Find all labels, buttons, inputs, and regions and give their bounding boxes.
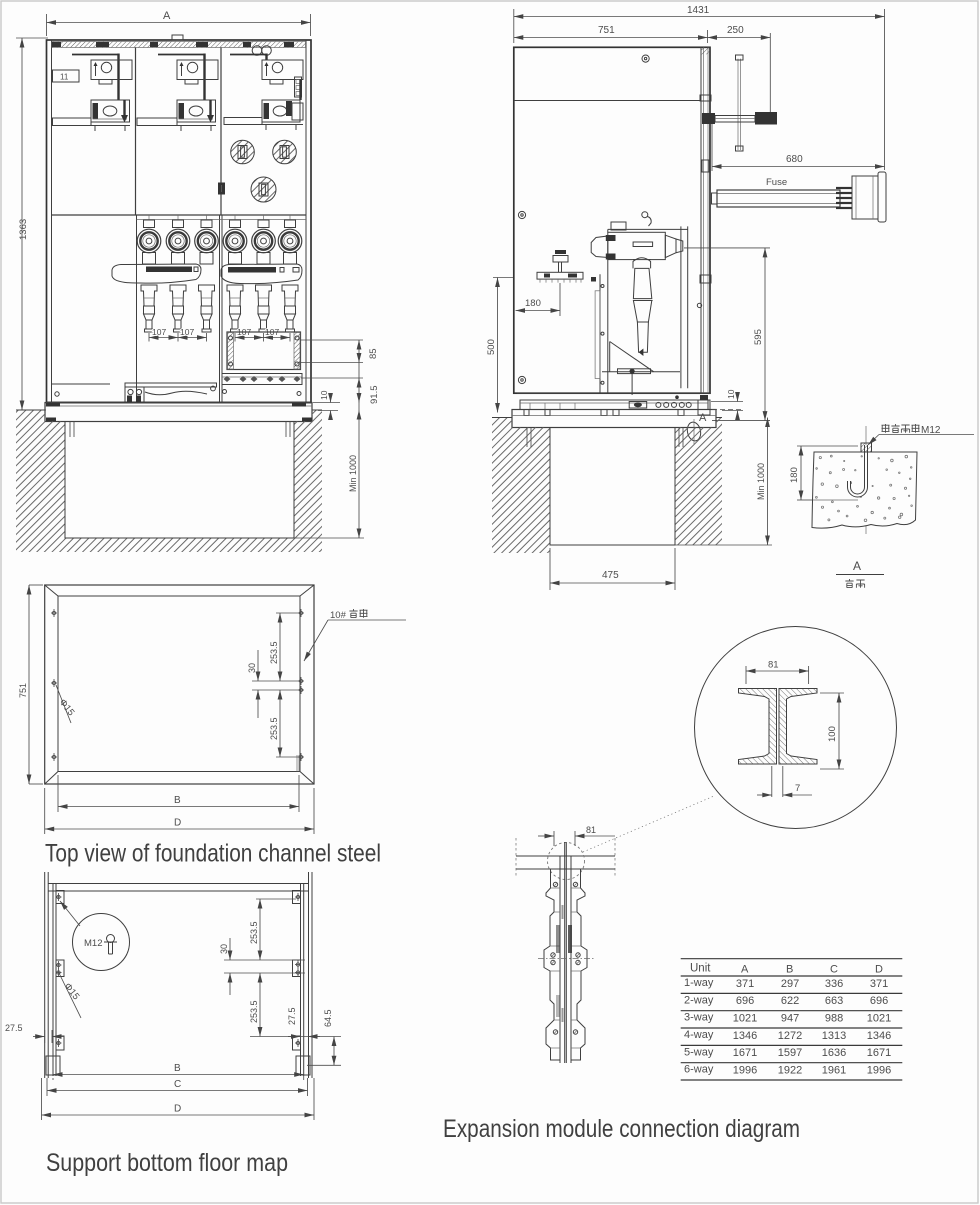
svg-text:81: 81 — [586, 825, 596, 835]
svg-text:6-way: 6-way — [684, 1064, 714, 1076]
svg-text:91.5: 91.5 — [369, 386, 380, 405]
svg-text:A: A — [853, 559, 861, 573]
svg-text:Top view of foundation channel: Top view of foundation channel steel — [45, 840, 381, 868]
svg-text:250: 250 — [727, 25, 744, 36]
svg-text:27.5: 27.5 — [5, 1023, 23, 1033]
svg-text:A: A — [741, 964, 749, 976]
svg-text:371: 371 — [736, 978, 754, 990]
svg-text:1961: 1961 — [822, 1065, 846, 1077]
svg-text:C: C — [174, 1079, 181, 1090]
svg-text:1272: 1272 — [778, 1030, 802, 1042]
svg-text:947: 947 — [781, 1013, 799, 1025]
svg-text:1431: 1431 — [687, 5, 710, 16]
svg-text:2-way: 2-way — [684, 994, 714, 1006]
svg-text:1996: 1996 — [867, 1065, 891, 1077]
svg-text:A: A — [699, 412, 707, 424]
svg-text:253.5: 253.5 — [269, 717, 279, 740]
svg-text:4-way: 4-way — [684, 1029, 714, 1041]
svg-text:85: 85 — [368, 348, 379, 359]
svg-text:1021: 1021 — [867, 1013, 891, 1025]
svg-text:1-way: 1-way — [684, 977, 714, 989]
svg-text:1671: 1671 — [867, 1047, 891, 1059]
svg-text:10#: 10# — [330, 610, 347, 621]
svg-text:595: 595 — [753, 329, 764, 345]
svg-text:696: 696 — [870, 995, 888, 1007]
svg-text:297: 297 — [781, 978, 799, 990]
svg-text:107: 107 — [152, 327, 166, 337]
svg-text:30: 30 — [219, 944, 229, 954]
svg-text:5-way: 5-way — [684, 1046, 714, 1058]
svg-text:751: 751 — [18, 683, 28, 698]
svg-text:30: 30 — [247, 663, 257, 673]
svg-text:1021: 1021 — [733, 1013, 757, 1025]
svg-text:680: 680 — [786, 154, 803, 165]
svg-text:Support bottom floor map: Support bottom floor map — [46, 1149, 288, 1177]
svg-text:D: D — [174, 818, 181, 829]
svg-text:1671: 1671 — [733, 1047, 757, 1059]
svg-text:988: 988 — [825, 1013, 843, 1025]
svg-text:1346: 1346 — [733, 1030, 757, 1042]
svg-text:64.5: 64.5 — [323, 1009, 333, 1027]
svg-text:Fuse: Fuse — [766, 177, 787, 188]
svg-text:Min 1000: Min 1000 — [348, 455, 358, 492]
svg-text:371: 371 — [870, 978, 888, 990]
svg-text:1636: 1636 — [822, 1047, 846, 1059]
svg-text:B: B — [174, 1063, 181, 1074]
svg-text:10: 10 — [319, 390, 329, 400]
svg-text:1922: 1922 — [778, 1065, 802, 1077]
svg-text:10: 10 — [726, 389, 736, 399]
svg-text:1346: 1346 — [867, 1030, 891, 1042]
svg-text:81: 81 — [768, 660, 779, 671]
svg-text:Min 1000: Min 1000 — [756, 463, 766, 500]
svg-text:253.5: 253.5 — [249, 921, 259, 944]
svg-text:M12: M12 — [84, 938, 102, 949]
svg-text:Expansion module connection di: Expansion module connection diagram — [443, 1115, 800, 1143]
svg-text:180: 180 — [525, 298, 541, 309]
svg-text:A: A — [163, 10, 171, 22]
svg-text:253.5: 253.5 — [249, 1000, 259, 1023]
svg-text:27.5: 27.5 — [287, 1007, 297, 1025]
svg-text:11: 11 — [60, 73, 69, 82]
svg-text:C: C — [830, 964, 838, 976]
svg-text:1363: 1363 — [18, 219, 29, 240]
svg-text:336: 336 — [825, 978, 843, 990]
svg-text:D: D — [875, 964, 883, 976]
svg-text:1313: 1313 — [822, 1030, 846, 1042]
svg-text:3-way: 3-way — [684, 1012, 714, 1024]
svg-text:500: 500 — [486, 339, 497, 355]
svg-text:663: 663 — [825, 995, 843, 1007]
svg-text:751: 751 — [598, 25, 615, 36]
svg-text:475: 475 — [602, 570, 619, 581]
svg-text:Unit: Unit — [690, 963, 711, 975]
svg-text:100: 100 — [827, 726, 838, 742]
svg-text:7: 7 — [795, 783, 800, 794]
svg-text:1597: 1597 — [778, 1047, 802, 1059]
svg-text:B: B — [174, 795, 181, 806]
svg-text:B: B — [786, 964, 793, 976]
svg-text:622: 622 — [781, 995, 799, 1007]
svg-text:107: 107 — [180, 327, 194, 337]
svg-text:1996: 1996 — [733, 1065, 757, 1077]
svg-text:253.5: 253.5 — [269, 641, 279, 664]
svg-text:696: 696 — [736, 995, 754, 1007]
svg-text:D: D — [174, 1104, 181, 1115]
svg-text:180: 180 — [789, 467, 800, 483]
